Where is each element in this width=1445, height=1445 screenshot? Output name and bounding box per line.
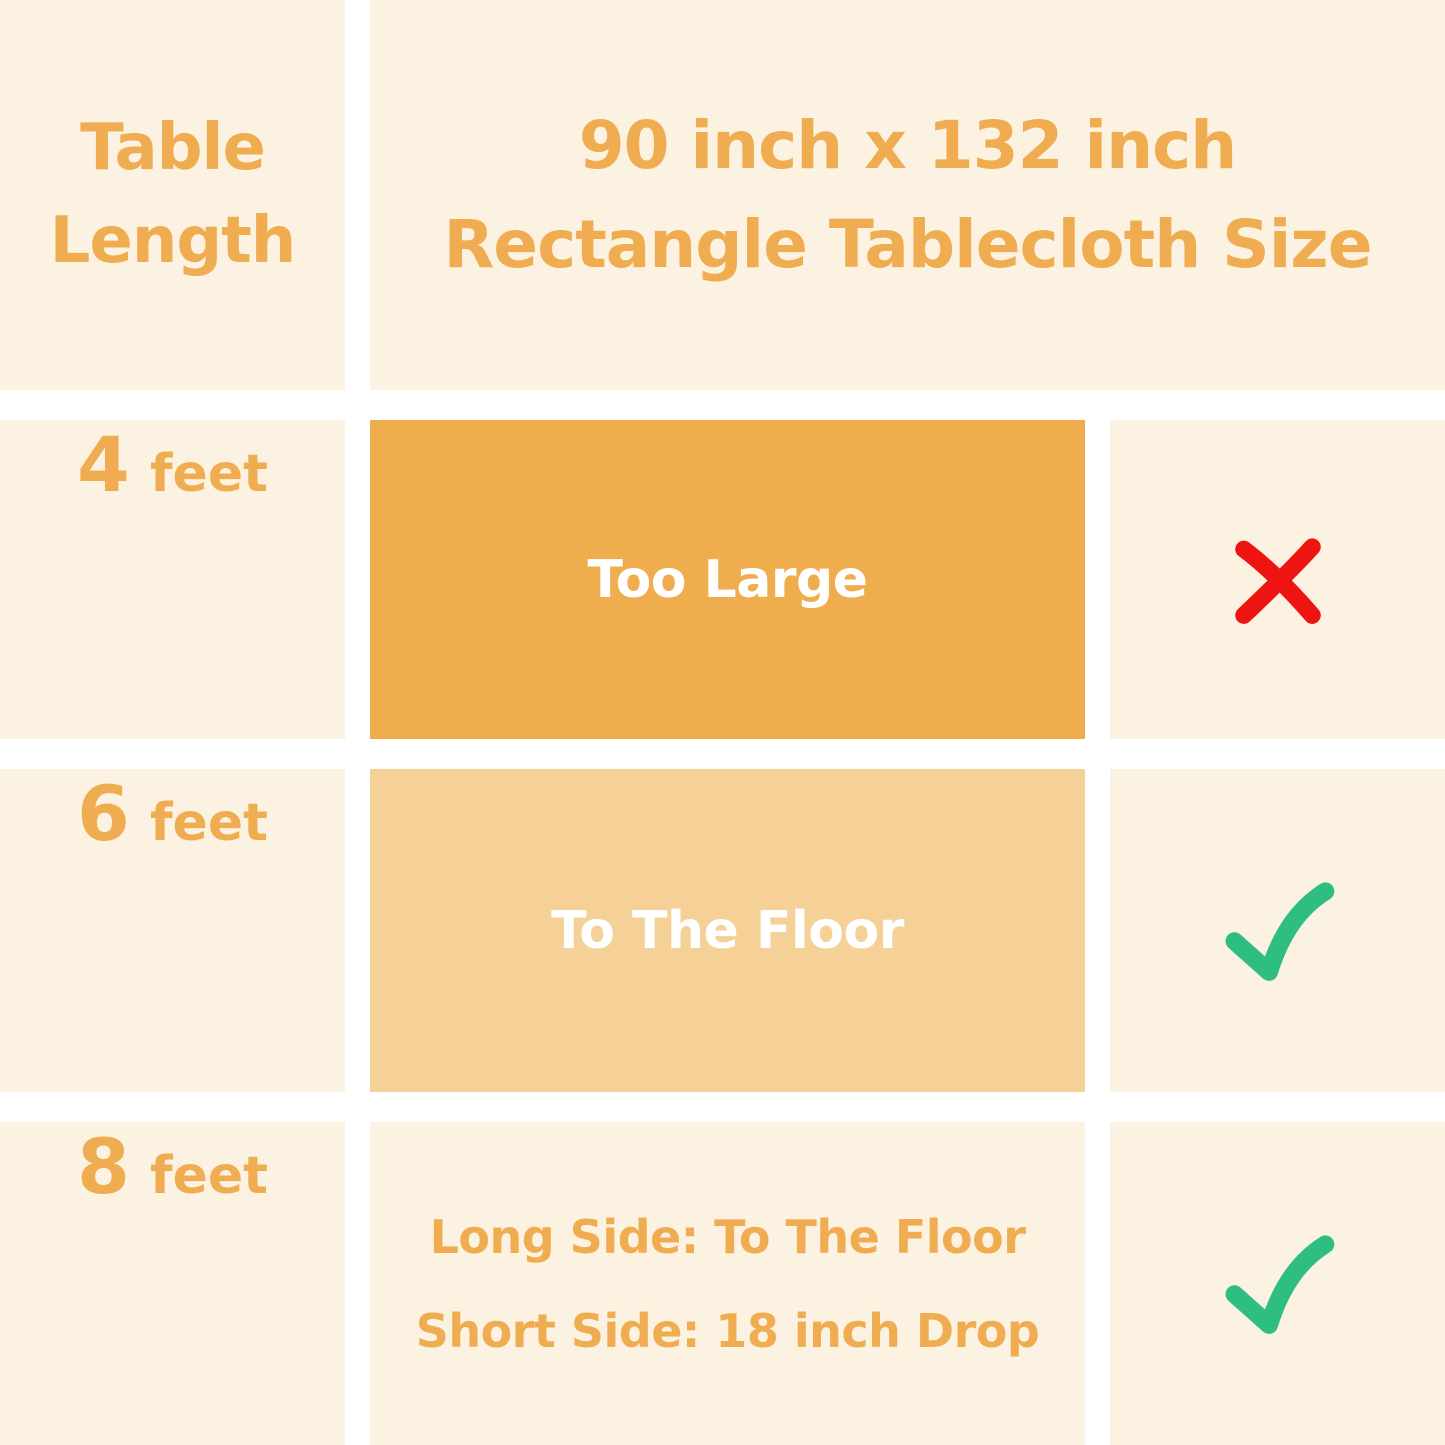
fit-cell-8-feet: Long Side: To The Floor Short Side: 18 i… [370,1122,1085,1445]
fit-cell-too-large: Too Large [370,420,1085,739]
length-value: 4 [77,420,130,509]
fit-label-short-side: Short Side: 18 inch Drop [416,1304,1040,1358]
mark-cell-4-feet [1110,420,1445,739]
mark-cell-8-feet [1110,1122,1445,1445]
title-line2: Rectangle Tablecloth Size [443,195,1371,294]
tablecloth-size-title-cell: 90 inch x 132 inch Rectangle Tablecloth … [370,0,1445,390]
fit-cell-to-the-floor: To The Floor [370,769,1085,1092]
table-length-cell-6-feet: 6 feet [0,769,345,1092]
table-length-header-cell: Table Length [0,0,345,390]
table-length-header-line1: Table [80,102,265,195]
fit-label: To The Floor [551,901,904,961]
length-value: 8 [77,1122,130,1211]
length-unit: feet [150,1146,268,1206]
fit-label: Too Large [588,550,868,610]
check-icon [1214,1220,1342,1348]
table-length-cell-8-feet: 8 feet [0,1122,345,1445]
length-unit: feet [150,444,268,504]
mark-cell-6-feet [1110,769,1445,1092]
check-icon [1214,867,1342,995]
length-unit: feet [150,793,268,853]
fit-label-long-side: Long Side: To The Floor [430,1210,1026,1264]
tablecloth-size-table: Table Length 90 inch x 132 inch Rectangl… [0,0,1445,1445]
cross-icon [1221,523,1335,637]
title-line1: 90 inch x 132 inch [579,96,1237,195]
length-value: 6 [77,769,130,858]
table-length-cell-4-feet: 4 feet [0,420,345,739]
table-length-header-line2: Length [50,195,296,288]
